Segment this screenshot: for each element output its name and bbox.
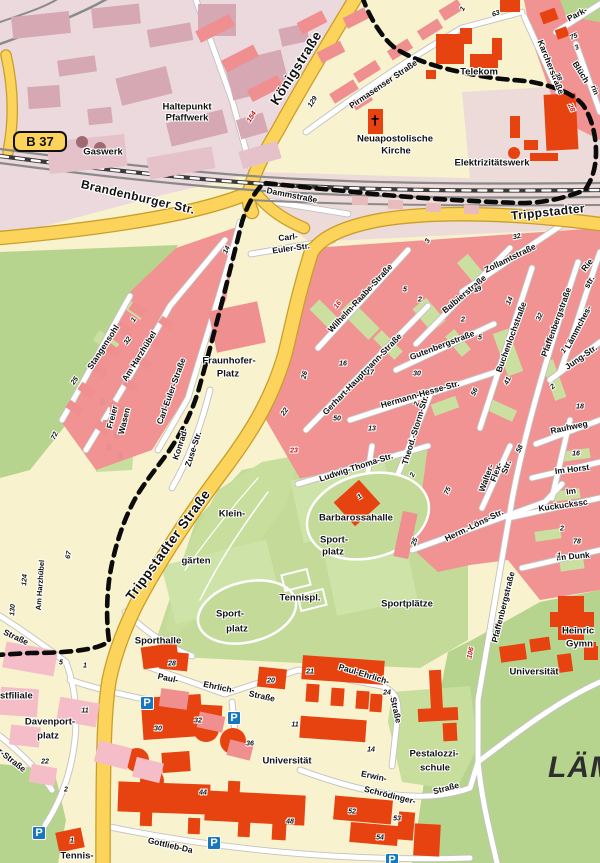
map-canvas[interactable]	[0, 0, 600, 863]
route-badge-b37: B 37	[13, 131, 67, 152]
city-map[interactable]: KönigstraßeBrandenburger Str.Trippstadte…	[0, 0, 600, 863]
